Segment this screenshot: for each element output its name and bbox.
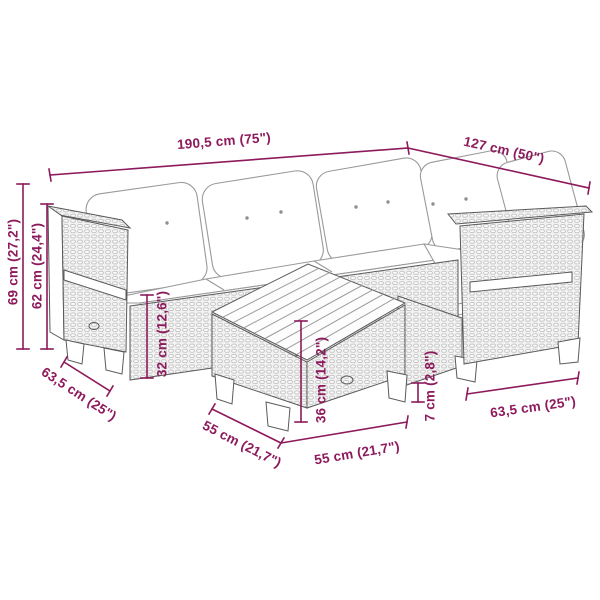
- dimension-label-total-height: 69 cm (27,2"): [6, 219, 21, 305]
- sofa-foot: [104, 348, 124, 374]
- dimension-label-table-height: 36 cm (14,2"): [314, 337, 329, 423]
- dimension-label-table-ground-clearance: 7 cm (2,8"): [423, 351, 438, 422]
- left-armrest: [48, 206, 130, 374]
- dimension-label-seat-height: 32 cm (12,6"): [155, 291, 170, 377]
- dimension-label-backrest-height: 62 cm (24,4"): [30, 223, 45, 309]
- sofa-foot: [558, 338, 580, 364]
- dimension-diagram: 190,5 cm (75") 127 cm (50") 69 cm (27,2"…: [0, 0, 600, 600]
- sofa-foot: [66, 340, 84, 364]
- right-armrest: [448, 206, 592, 364]
- furniture-drawing: [0, 0, 600, 600]
- table-leg: [387, 371, 407, 402]
- table-leg: [266, 402, 290, 431]
